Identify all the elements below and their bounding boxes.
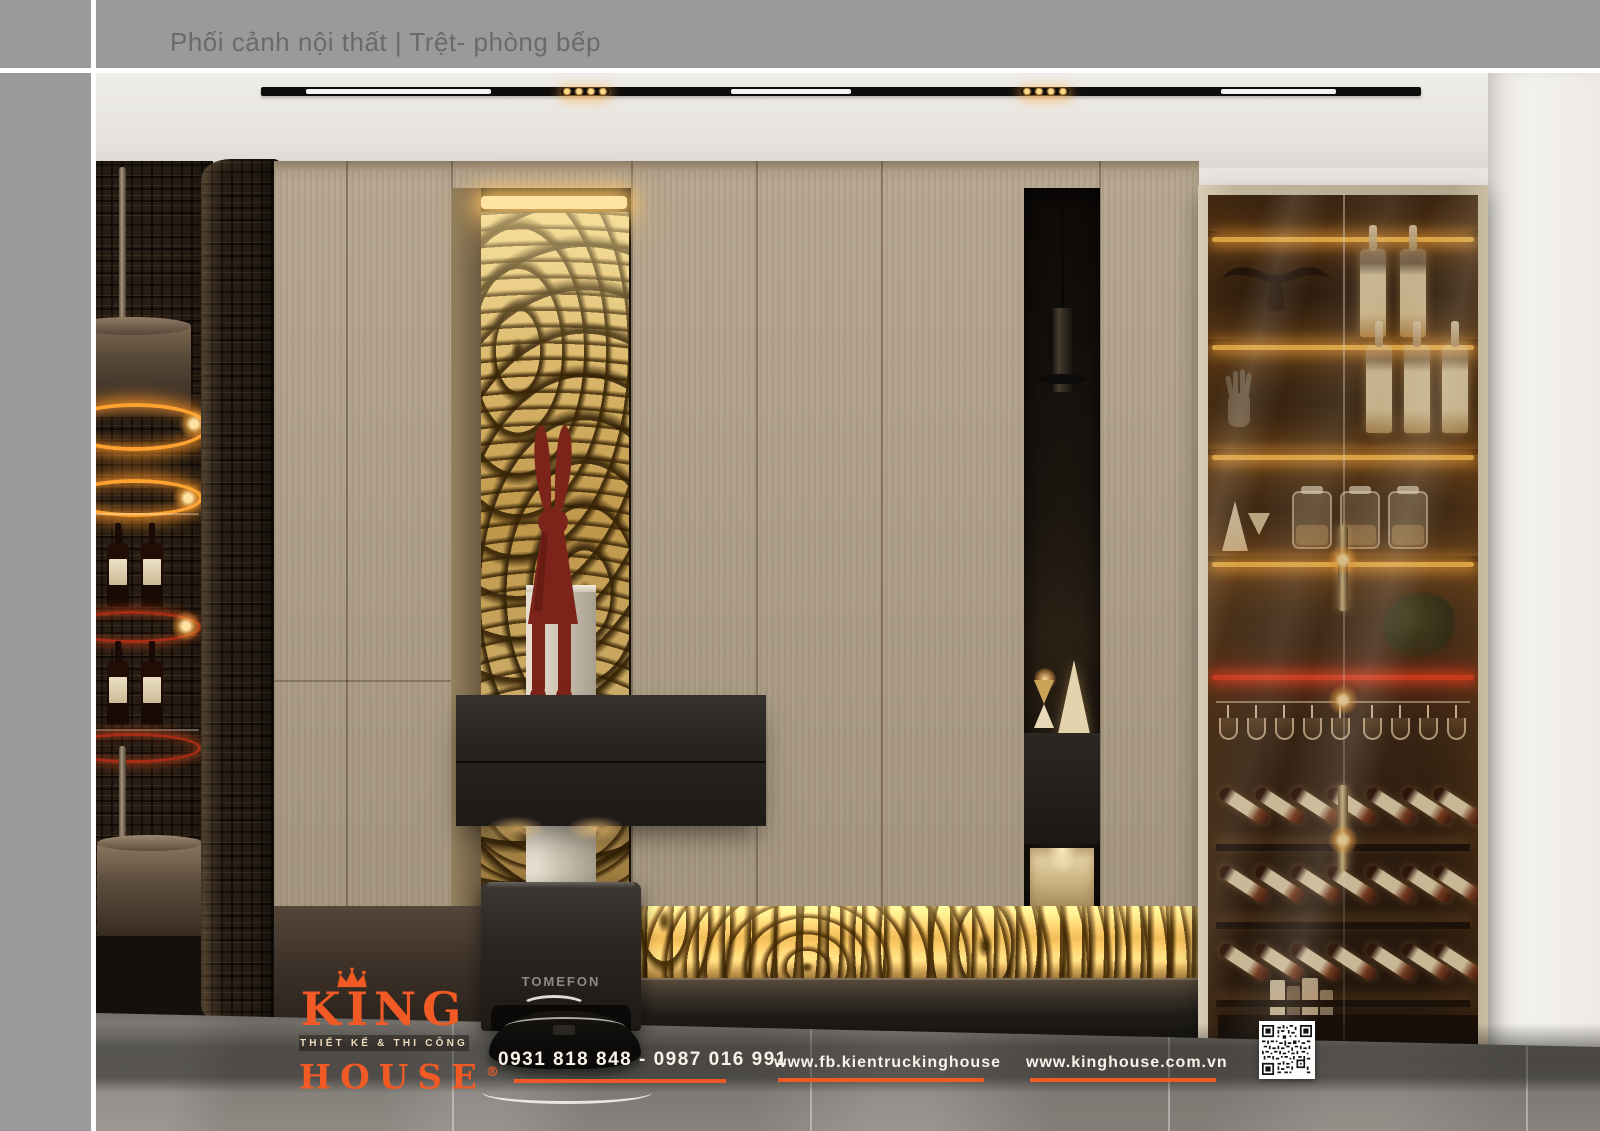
tower-plinth bbox=[96, 936, 213, 1018]
qr-code-icon bbox=[1259, 1021, 1315, 1079]
glass-glint-icon bbox=[1328, 825, 1358, 855]
wine-glass bbox=[1418, 705, 1438, 741]
wine-bottle bbox=[107, 543, 129, 607]
glass-glint-icon bbox=[1328, 685, 1358, 715]
wine-bottle bbox=[107, 661, 129, 725]
rabbit-figurine-icon bbox=[506, 416, 601, 711]
decor-cone bbox=[1222, 501, 1248, 551]
track-led-cluster-icon bbox=[1021, 88, 1069, 95]
wine-glass bbox=[1446, 705, 1466, 741]
rotating-wine-tower bbox=[96, 161, 213, 1018]
wine-bottle bbox=[141, 543, 163, 607]
under-cabinet-glow bbox=[566, 816, 626, 842]
glass-jar bbox=[1388, 491, 1428, 549]
cabinet-molding bbox=[274, 161, 1199, 170]
tower-pole bbox=[119, 167, 126, 337]
wine-glass bbox=[1390, 705, 1410, 741]
track-light-segment bbox=[306, 89, 491, 94]
logo-tagline: THIẾT KẾ & THI CÔNG bbox=[299, 1035, 469, 1051]
crocodile-column bbox=[201, 159, 281, 1025]
under-cabinet-glow bbox=[486, 816, 546, 842]
track-led-cluster-icon bbox=[561, 88, 609, 95]
facebook-url: www.fb.kientruckinghouse bbox=[774, 1054, 1001, 1072]
glass-shelf bbox=[96, 513, 199, 515]
hand-sculpture-icon bbox=[1220, 367, 1260, 433]
cabinet-door-seam bbox=[346, 161, 348, 908]
decor-cone bbox=[1058, 660, 1090, 734]
floating-drawer-unit bbox=[456, 695, 766, 826]
board-left-panel bbox=[0, 0, 91, 1131]
wine-bottle bbox=[141, 661, 163, 725]
wine-glass bbox=[1218, 705, 1238, 741]
led-spark-icon bbox=[173, 483, 203, 513]
wine-glass bbox=[1246, 705, 1266, 741]
logo-house-word: HOUSE bbox=[299, 1057, 486, 1097]
wine-bottle bbox=[1442, 345, 1468, 433]
website-url: www.kinghouse.com.vn bbox=[1026, 1054, 1228, 1072]
longhorn-sculpture-icon bbox=[1220, 253, 1332, 315]
render-viewport: TOMEFON KING THIẾT KẾ & THI CÔNG HOUSE® … bbox=[96, 73, 1600, 1131]
accent-underline bbox=[514, 1079, 726, 1083]
horizontal-divider bbox=[0, 68, 1600, 73]
robot-vacuum-dock: TOMEFON bbox=[481, 882, 641, 1031]
page-title: Phối cảnh nội thất | Trệt- phòng bếp bbox=[170, 27, 601, 58]
plant bbox=[1384, 593, 1454, 657]
accent-underline bbox=[1030, 1078, 1216, 1082]
vertical-divider bbox=[91, 0, 96, 1131]
track-light bbox=[261, 87, 1421, 96]
pendant-light-disc bbox=[1038, 374, 1087, 384]
glass-door-seam bbox=[1343, 195, 1345, 1048]
cove-light bbox=[481, 196, 627, 209]
cabinet-door-seam bbox=[881, 161, 883, 908]
decor-cone bbox=[1248, 513, 1270, 535]
accent-underline bbox=[778, 1078, 984, 1082]
cabinet-door-seam bbox=[274, 680, 451, 682]
glass-jar bbox=[1292, 491, 1332, 549]
header-band: Phối cảnh nội thất | Trệt- phòng bếp bbox=[96, 0, 1600, 68]
wine-glass bbox=[1302, 705, 1322, 741]
led-spark-icon bbox=[171, 611, 201, 641]
decor-hourglass bbox=[1034, 704, 1054, 728]
wine-glass bbox=[1362, 705, 1382, 741]
crown-icon bbox=[333, 967, 371, 989]
glass-shelf bbox=[96, 729, 199, 731]
brand-logo: KING THIẾT KẾ & THI CÔNG HOUSE® bbox=[299, 969, 469, 1096]
track-light-segment bbox=[731, 89, 851, 94]
tall-display-niche bbox=[1024, 188, 1100, 906]
wine-bottle bbox=[1366, 345, 1392, 433]
phone-numbers: 0931 818 848 - 0987 016 991 bbox=[498, 1049, 788, 1071]
decor-hourglass bbox=[1034, 680, 1054, 704]
lit-cubby bbox=[1030, 848, 1094, 906]
wine-bottle bbox=[1404, 345, 1430, 433]
logo-house-text: HOUSE® bbox=[299, 1054, 469, 1096]
logo-king-text: KING bbox=[299, 985, 469, 1033]
presentation-board: Phối cảnh nội thất | Trệt- phòng bếp bbox=[0, 0, 1600, 1131]
glass-glint-icon bbox=[1328, 545, 1358, 575]
side-wall bbox=[1488, 73, 1600, 1048]
track-light-segment bbox=[1221, 89, 1336, 94]
niche-drawer bbox=[1024, 733, 1100, 844]
registered-mark: ® bbox=[486, 1065, 499, 1080]
wine-display-cabinet bbox=[1198, 185, 1488, 1048]
pendant-light-stem bbox=[1061, 198, 1064, 310]
tower-base bbox=[97, 843, 203, 939]
wine-glass bbox=[1274, 705, 1294, 741]
vacuum-brand-label: TOMEFON bbox=[481, 974, 641, 989]
